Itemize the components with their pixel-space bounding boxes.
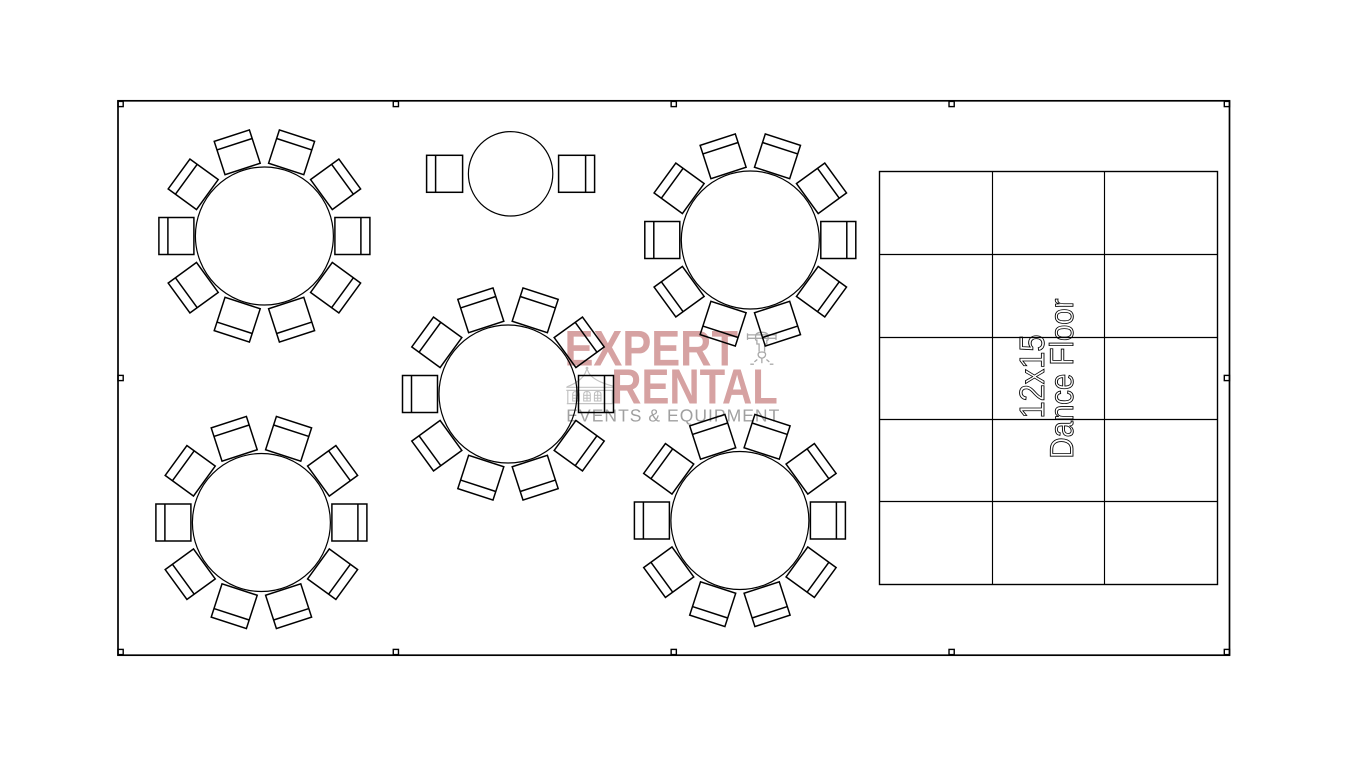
svg-text:Dance Floor: Dance Floor (1043, 299, 1080, 459)
svg-text:EVENTS & EQUIPMENT: EVENTS & EQUIPMENT (566, 406, 779, 426)
